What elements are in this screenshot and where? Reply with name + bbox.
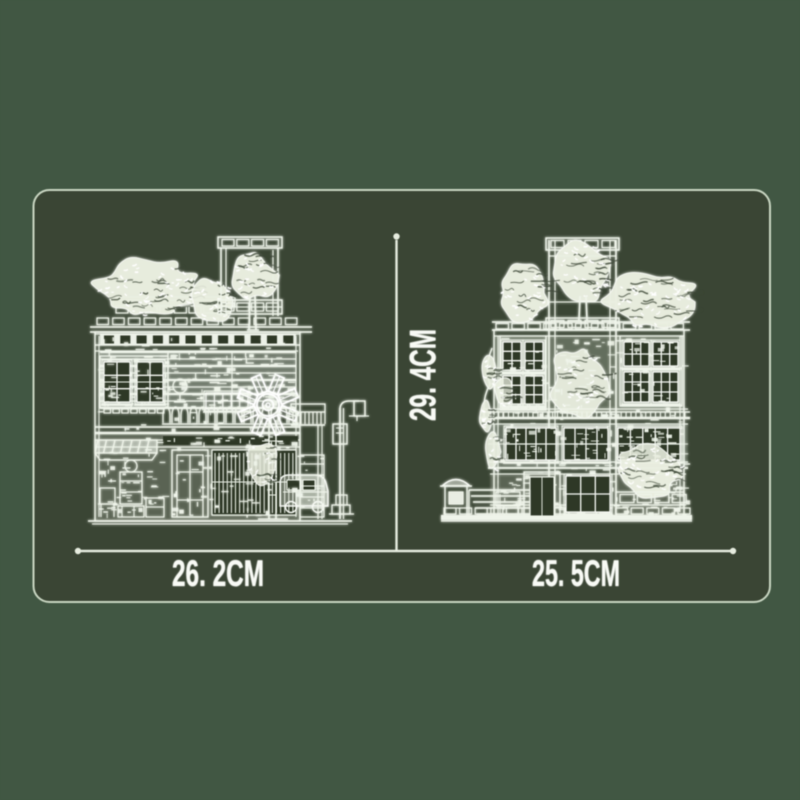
svg-text:25. 5CM: 25. 5CM bbox=[532, 553, 620, 594]
svg-text:26. 2CM: 26. 2CM bbox=[172, 553, 264, 594]
svg-text:29. 4CM: 29. 4CM bbox=[403, 329, 444, 421]
